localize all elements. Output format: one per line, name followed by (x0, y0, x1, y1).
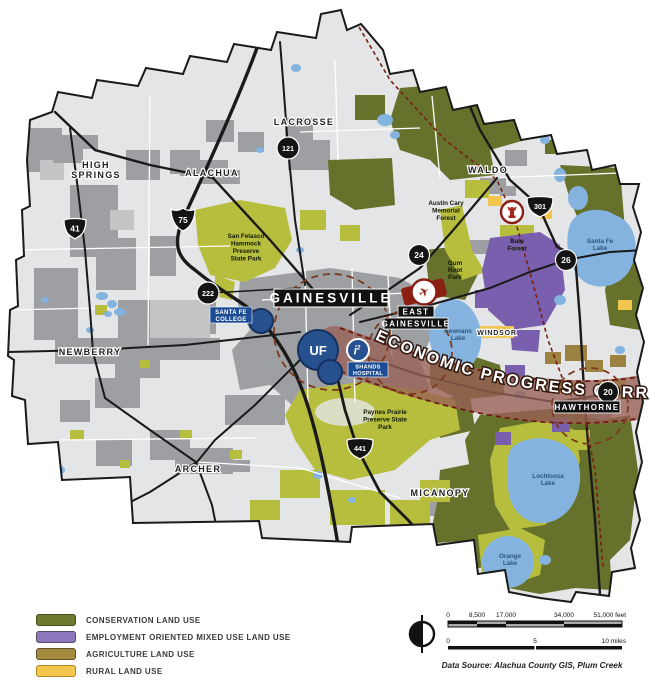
label-newberry: NEWBERRY (59, 347, 122, 357)
north-arrow-icon (410, 615, 434, 653)
svg-text:0: 0 (446, 638, 450, 645)
uf-label: UF (309, 343, 326, 358)
monument-icon (501, 201, 523, 223)
svg-text:121: 121 (282, 144, 294, 153)
svg-text:301: 301 (534, 202, 546, 211)
label-lacrosse: LACROSSE (274, 117, 334, 127)
map-page: ECONOMIC PROGRESS CORRIDOR HIGHSPRINGS A… (0, 0, 650, 692)
svg-text:20: 20 (603, 387, 613, 397)
shands-hospital-box: SHANDS HOSPITAL (348, 362, 388, 377)
miles-scalebar: 0 5 10 miles (446, 638, 627, 650)
gainesville-box: GAINESVILLE (269, 289, 392, 307)
label-windsor: WINDSOR (477, 330, 516, 337)
svg-text:GAINESVILLE: GAINESVILLE (382, 320, 451, 329)
svg-text:0: 0 (446, 612, 450, 619)
svg-text:GAINESVILLE: GAINESVILLE (269, 291, 392, 306)
legend-item-employment: EMPLOYMENT ORIENTED MIXED USE LAND USE (36, 631, 291, 643)
sr-222-shield: 222 (197, 282, 219, 304)
svg-text:41: 41 (70, 224, 80, 234)
svg-text:34,000: 34,000 (554, 612, 574, 619)
svg-text:SHANDS: SHANDS (355, 365, 380, 371)
legend-item-conservation: CONSERVATION LAND USE (36, 614, 291, 626)
svg-text:SANTA FE: SANTA FE (215, 310, 247, 316)
svg-text:24: 24 (414, 250, 424, 260)
svg-text:HOSPITAL: HOSPITAL (353, 371, 384, 377)
legend-label: AGRICULTURE LAND USE (86, 650, 195, 659)
sr-121-shield: 121 (277, 137, 299, 159)
scale-block: 0 8,500 17,000 34,000 51,000 feet 0 5 10… (400, 602, 650, 690)
svg-text:5: 5 (533, 638, 537, 645)
scale-graphics: 0 8,500 17,000 34,000 51,000 feet 0 5 10… (400, 602, 650, 690)
svg-text:10 miles: 10 miles (602, 638, 627, 645)
svg-text:222: 222 (202, 289, 214, 298)
sr-24-shield: 24 (409, 245, 430, 266)
svg-text:HAWTHORNE: HAWTHORNE (554, 403, 619, 412)
label-gum-root: GumRootPark (448, 260, 463, 281)
legend-item-rural: RURAL LAND USE (36, 665, 291, 677)
svg-text:441: 441 (354, 444, 366, 453)
conservation-swatch (36, 614, 76, 626)
legend-label: EMPLOYMENT ORIENTED MIXED USE LAND USE (86, 633, 291, 642)
santa-fe-college-box: SANTA FE COLLEGE (210, 307, 252, 323)
svg-text:51,000 feet: 51,000 feet (593, 612, 626, 619)
legend-label: CONSERVATION LAND USE (86, 616, 201, 625)
sr-20-shield: 20 (598, 382, 619, 403)
label-san-felasco: San FelascoHammockPreserveState Park (228, 233, 265, 263)
feet-scalebar: 0 8,500 17,000 34,000 51,000 feet (446, 612, 626, 627)
svg-text:75: 75 (178, 215, 188, 225)
legend-label: RURAL LAND USE (86, 667, 163, 676)
agriculture-swatch (36, 648, 76, 660)
shands-dot (318, 360, 342, 384)
label-alachua: ALACHUA (185, 168, 239, 178)
employment-swatch (36, 631, 76, 643)
county-map: ECONOMIC PROGRESS CORRIDOR HIGHSPRINGS A… (0, 0, 650, 608)
label-micanopy: MICANOPY (411, 488, 470, 498)
svg-text:COLLEGE: COLLEGE (215, 317, 246, 323)
santa-fe-college-dot (249, 309, 273, 333)
svg-text:EAST: EAST (403, 308, 430, 317)
svg-text:17,000: 17,000 (496, 612, 516, 619)
legend-item-agriculture: AGRICULTURE LAND USE (36, 648, 291, 660)
hawthorne-box: HAWTHORNE (554, 401, 620, 413)
svg-text:8,500: 8,500 (469, 612, 486, 619)
label-archer: ARCHER (175, 464, 221, 474)
label-waldo: WALDO (468, 165, 508, 175)
legend: CONSERVATION LAND USE EMPLOYMENT ORIENTE… (36, 614, 291, 682)
rural-swatch (36, 665, 76, 677)
sr-26-shield: 26 (556, 250, 577, 271)
data-source-text: Data Source: Alachua County GIS, Plum Cr… (442, 661, 623, 670)
svg-text:26: 26 (561, 255, 571, 265)
